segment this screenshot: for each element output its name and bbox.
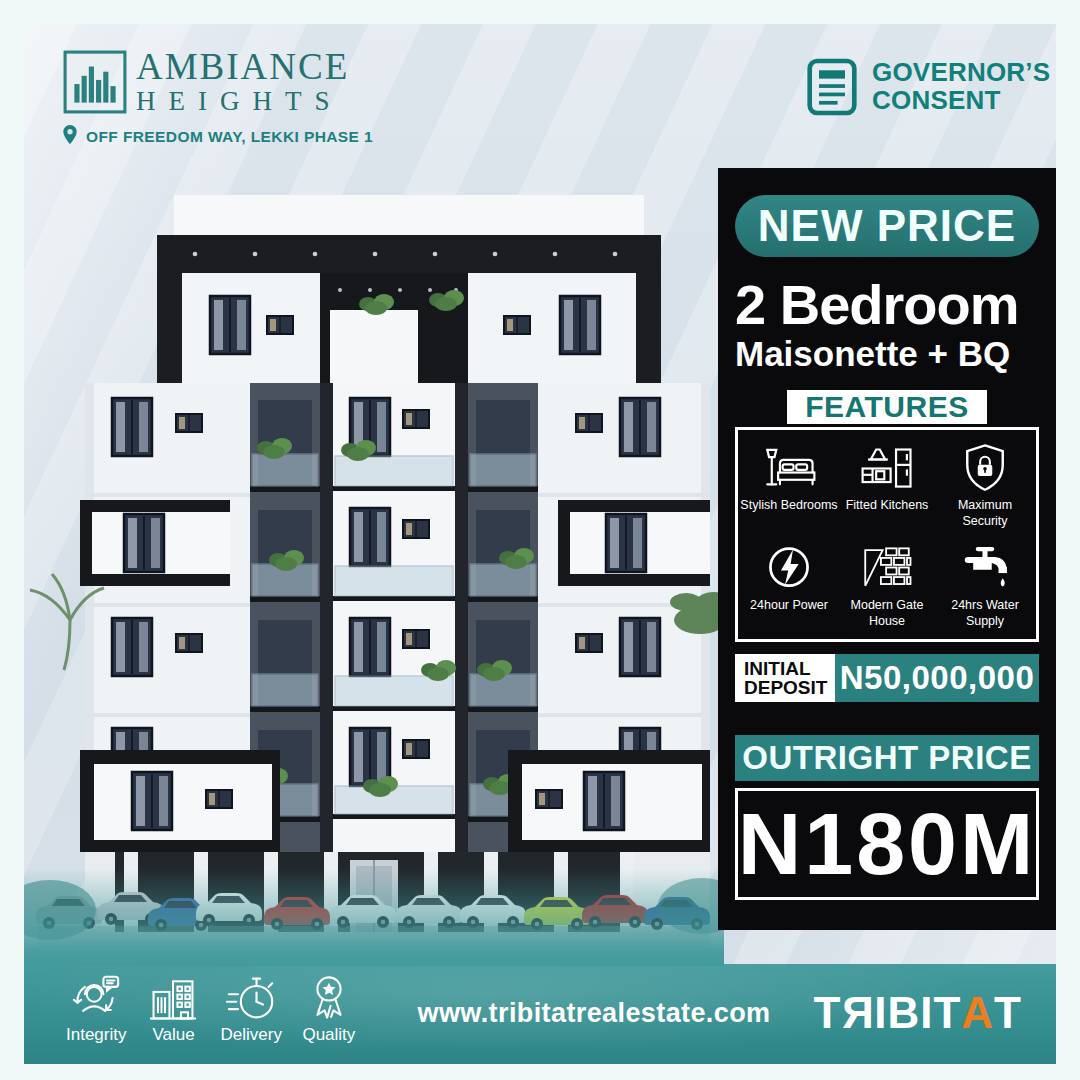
brand-name-line1: AMBIANCE <box>136 48 349 85</box>
gatehouse-icon <box>859 542 915 594</box>
poster: AMBIANCE HEIGHTS OFF FREEDOM WAY, LEKKI … <box>0 0 1080 1080</box>
tribitat-logo: TRIBITAT <box>814 988 1022 1038</box>
medal-icon <box>304 972 354 1022</box>
unit-subtitle: Maisonette + BQ <box>735 333 1039 375</box>
offer-panel: NEW PRICE 2 Bedroom Maisonette + BQ FEAT… <box>718 168 1056 930</box>
value-item: Quality <box>300 972 358 1045</box>
value-item: Delivery <box>220 972 281 1045</box>
feature-label: Maximum Security <box>936 497 1034 530</box>
support-icon <box>70 972 122 1022</box>
value-label: Value <box>152 1025 194 1045</box>
lightning-icon <box>763 542 815 594</box>
feature-item: Stylish Bedrooms <box>740 442 838 530</box>
brand-name-line2: HEIGHTS <box>136 88 349 115</box>
value-label: Quality <box>302 1025 355 1045</box>
feature-label: Stylish Bedrooms <box>740 497 837 513</box>
water-tap-icon <box>958 542 1012 594</box>
value-item: Value <box>144 972 202 1045</box>
feature-label: 24hrs Water Supply <box>936 597 1034 630</box>
document-icon <box>806 56 858 118</box>
buildings-icon <box>148 972 198 1022</box>
unit-title: 2 Bedroom <box>735 277 1039 333</box>
feature-item: Modern Gate House <box>838 542 936 630</box>
orange-a: A <box>961 988 994 1038</box>
feature-label: Modern Gate House <box>838 597 936 630</box>
outright-price-label: OUTRIGHT PRICE <box>735 735 1039 781</box>
feature-label: Fitted Kitchens <box>846 497 929 513</box>
feature-item: 24hrs Water Supply <box>936 542 1034 630</box>
value-item: Integrity <box>66 972 126 1045</box>
shield-lock-icon <box>959 442 1011 494</box>
feature-item: Maximum Security <box>936 442 1034 530</box>
feature-label: 24hour Power <box>750 597 828 613</box>
stopwatch-icon <box>225 972 277 1022</box>
bed-icon <box>760 442 818 494</box>
initial-deposit-row: INITIAL DEPOSIT N50,000,000 <box>735 654 1039 702</box>
features-title: FEATURES <box>787 390 986 424</box>
consent-line1: GOVERNOR’S <box>872 59 1050 87</box>
initial-deposit-label: INITIAL DEPOSIT <box>735 654 835 702</box>
governors-consent-badge: GOVERNOR’S CONSENT <box>806 56 1050 118</box>
initial-deposit-value: N50,000,000 <box>835 654 1039 702</box>
brand-header: AMBIANCE HEIGHTS OFF FREEDOM WAY, LEKKI … <box>62 48 373 149</box>
mirrored-r: R <box>841 988 874 1038</box>
feature-item: Fitted Kitchens <box>838 442 936 530</box>
ambiance-logo-icon <box>62 49 128 115</box>
consent-line2: CONSENT <box>872 87 1050 115</box>
value-label: Delivery <box>220 1025 281 1045</box>
website-url: www.tribitatrealestate.com <box>394 998 794 1029</box>
company-values: Integrity Value <box>66 972 358 1045</box>
brand-location: OFF FREEDOM WAY, LEKKI PHASE 1 <box>86 128 373 146</box>
features-grid: Stylish Bedrooms Fitted Kitchens <box>735 427 1039 642</box>
value-label: Integrity <box>66 1025 126 1045</box>
footer-band: Integrity Value <box>24 964 1056 1064</box>
kitchen-icon <box>858 442 916 494</box>
feature-item: 24hour Power <box>740 542 838 630</box>
outright-price-value: N180M <box>735 788 1039 900</box>
location-pin-icon <box>62 124 78 149</box>
new-price-tag: NEW PRICE <box>735 195 1039 257</box>
